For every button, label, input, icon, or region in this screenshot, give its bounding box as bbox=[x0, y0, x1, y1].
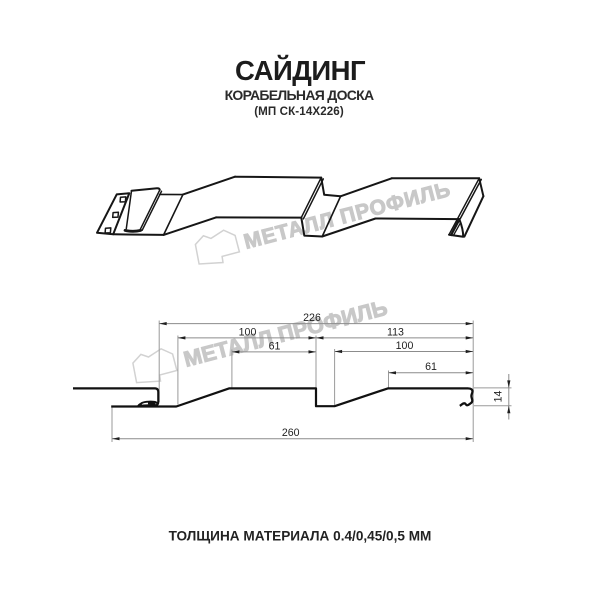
svg-text:(МП СК-14Х226): (МП СК-14Х226) bbox=[254, 105, 344, 118]
svg-text:61: 61 bbox=[425, 361, 437, 373]
svg-text:КОРАБЕЛЬНАЯ ДОСКА: КОРАБЕЛЬНАЯ ДОСКА bbox=[225, 87, 374, 103]
svg-text:226: 226 bbox=[303, 312, 321, 324]
svg-text:ТОЛЩИНА МАТЕРИАЛА 0.4/0,45/0,5: ТОЛЩИНА МАТЕРИАЛА 0.4/0,45/0,5 ММ bbox=[169, 529, 432, 544]
svg-text:100: 100 bbox=[239, 326, 257, 338]
svg-text:113: 113 bbox=[387, 326, 404, 338]
svg-text:61: 61 bbox=[269, 340, 281, 352]
svg-text:260: 260 bbox=[282, 427, 300, 439]
svg-text:САЙДИНГ: САЙДИНГ bbox=[235, 55, 366, 86]
svg-text:14: 14 bbox=[493, 391, 505, 403]
svg-text:100: 100 bbox=[396, 340, 414, 352]
